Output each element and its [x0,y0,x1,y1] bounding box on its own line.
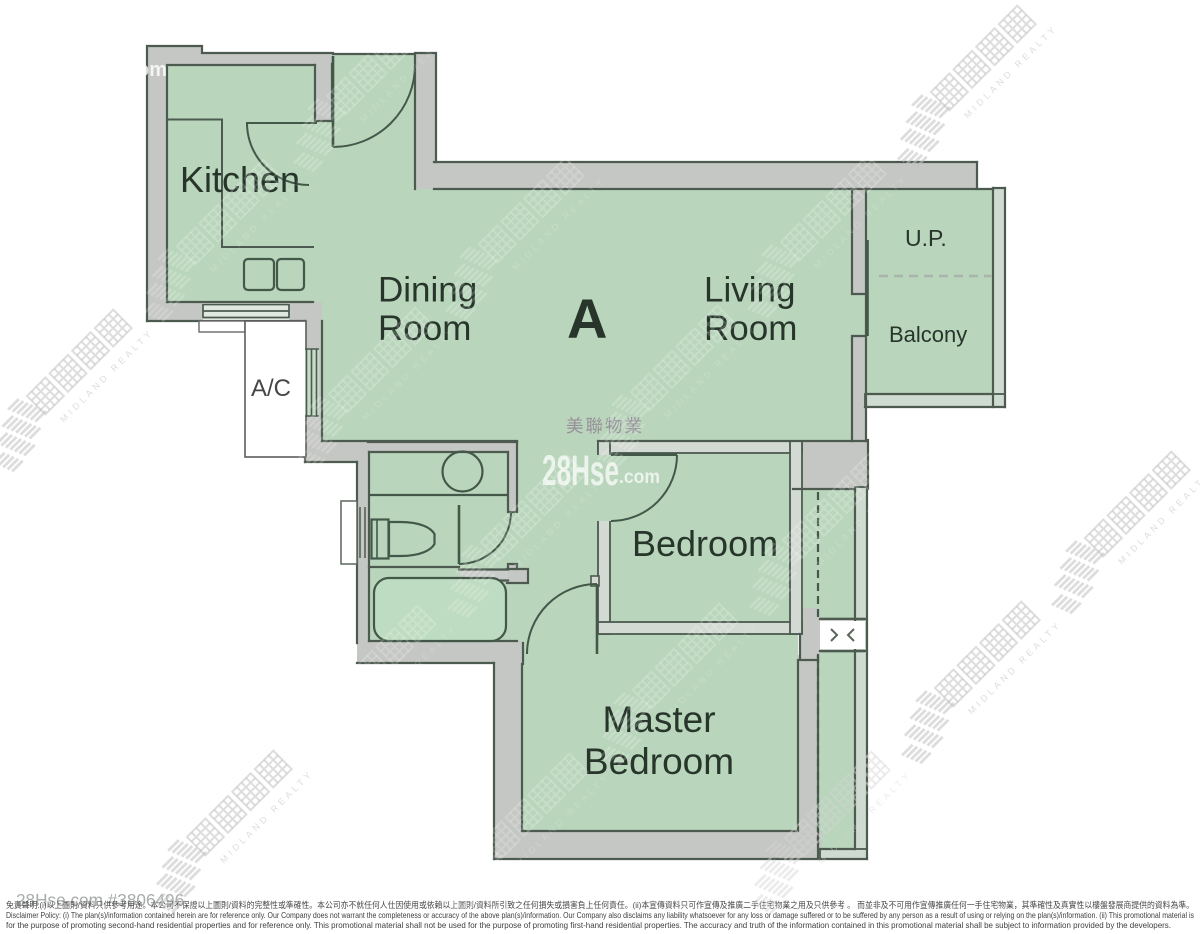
svg-text:Balcony: Balcony [889,322,967,347]
svg-text:Bedroom: Bedroom [632,523,778,564]
svg-text:A: A [567,287,607,350]
svg-text:Disclaimer Policy: (i) The pla: Disclaimer Policy: (i) The plan(s)/infor… [6,910,1194,920]
svg-text:U.P.: U.P. [905,225,947,251]
svg-text:for the purpose of promoting s: for the purpose of promoting second-hand… [6,920,1171,930]
svg-text:.com: .com [619,467,660,488]
svg-text:美聯物業: 美聯物業 [566,416,644,436]
svg-text:免責聲明:(i)以上圖則/資料只供參考用途。本公司不保證以上: 免責聲明:(i)以上圖則/資料只供參考用途。本公司不保證以上圖則/資料的完整性或… [6,900,1194,910]
svg-text:om: om [137,59,167,81]
svg-text:A/C: A/C [251,375,291,402]
